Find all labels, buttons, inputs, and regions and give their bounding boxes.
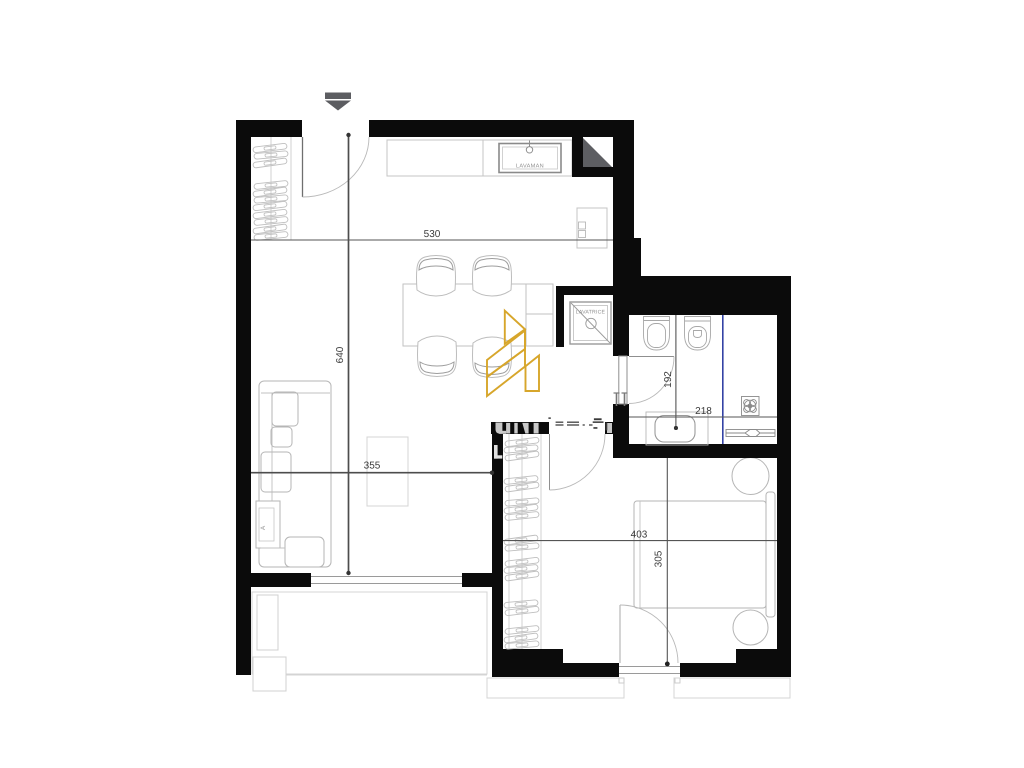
- svg-text:LAVATRICE: LAVATRICE: [576, 310, 606, 316]
- svg-text:403: 403: [631, 530, 648, 541]
- svg-text:218: 218: [695, 406, 712, 417]
- svg-text:192: 192: [663, 371, 674, 388]
- svg-text:355: 355: [364, 461, 381, 472]
- svg-text:640: 640: [335, 346, 346, 363]
- svg-text:305: 305: [654, 550, 665, 567]
- svg-text:530: 530: [424, 229, 441, 240]
- svg-text:LAVAMAN: LAVAMAN: [516, 164, 544, 170]
- svg-text:A: A: [260, 525, 267, 530]
